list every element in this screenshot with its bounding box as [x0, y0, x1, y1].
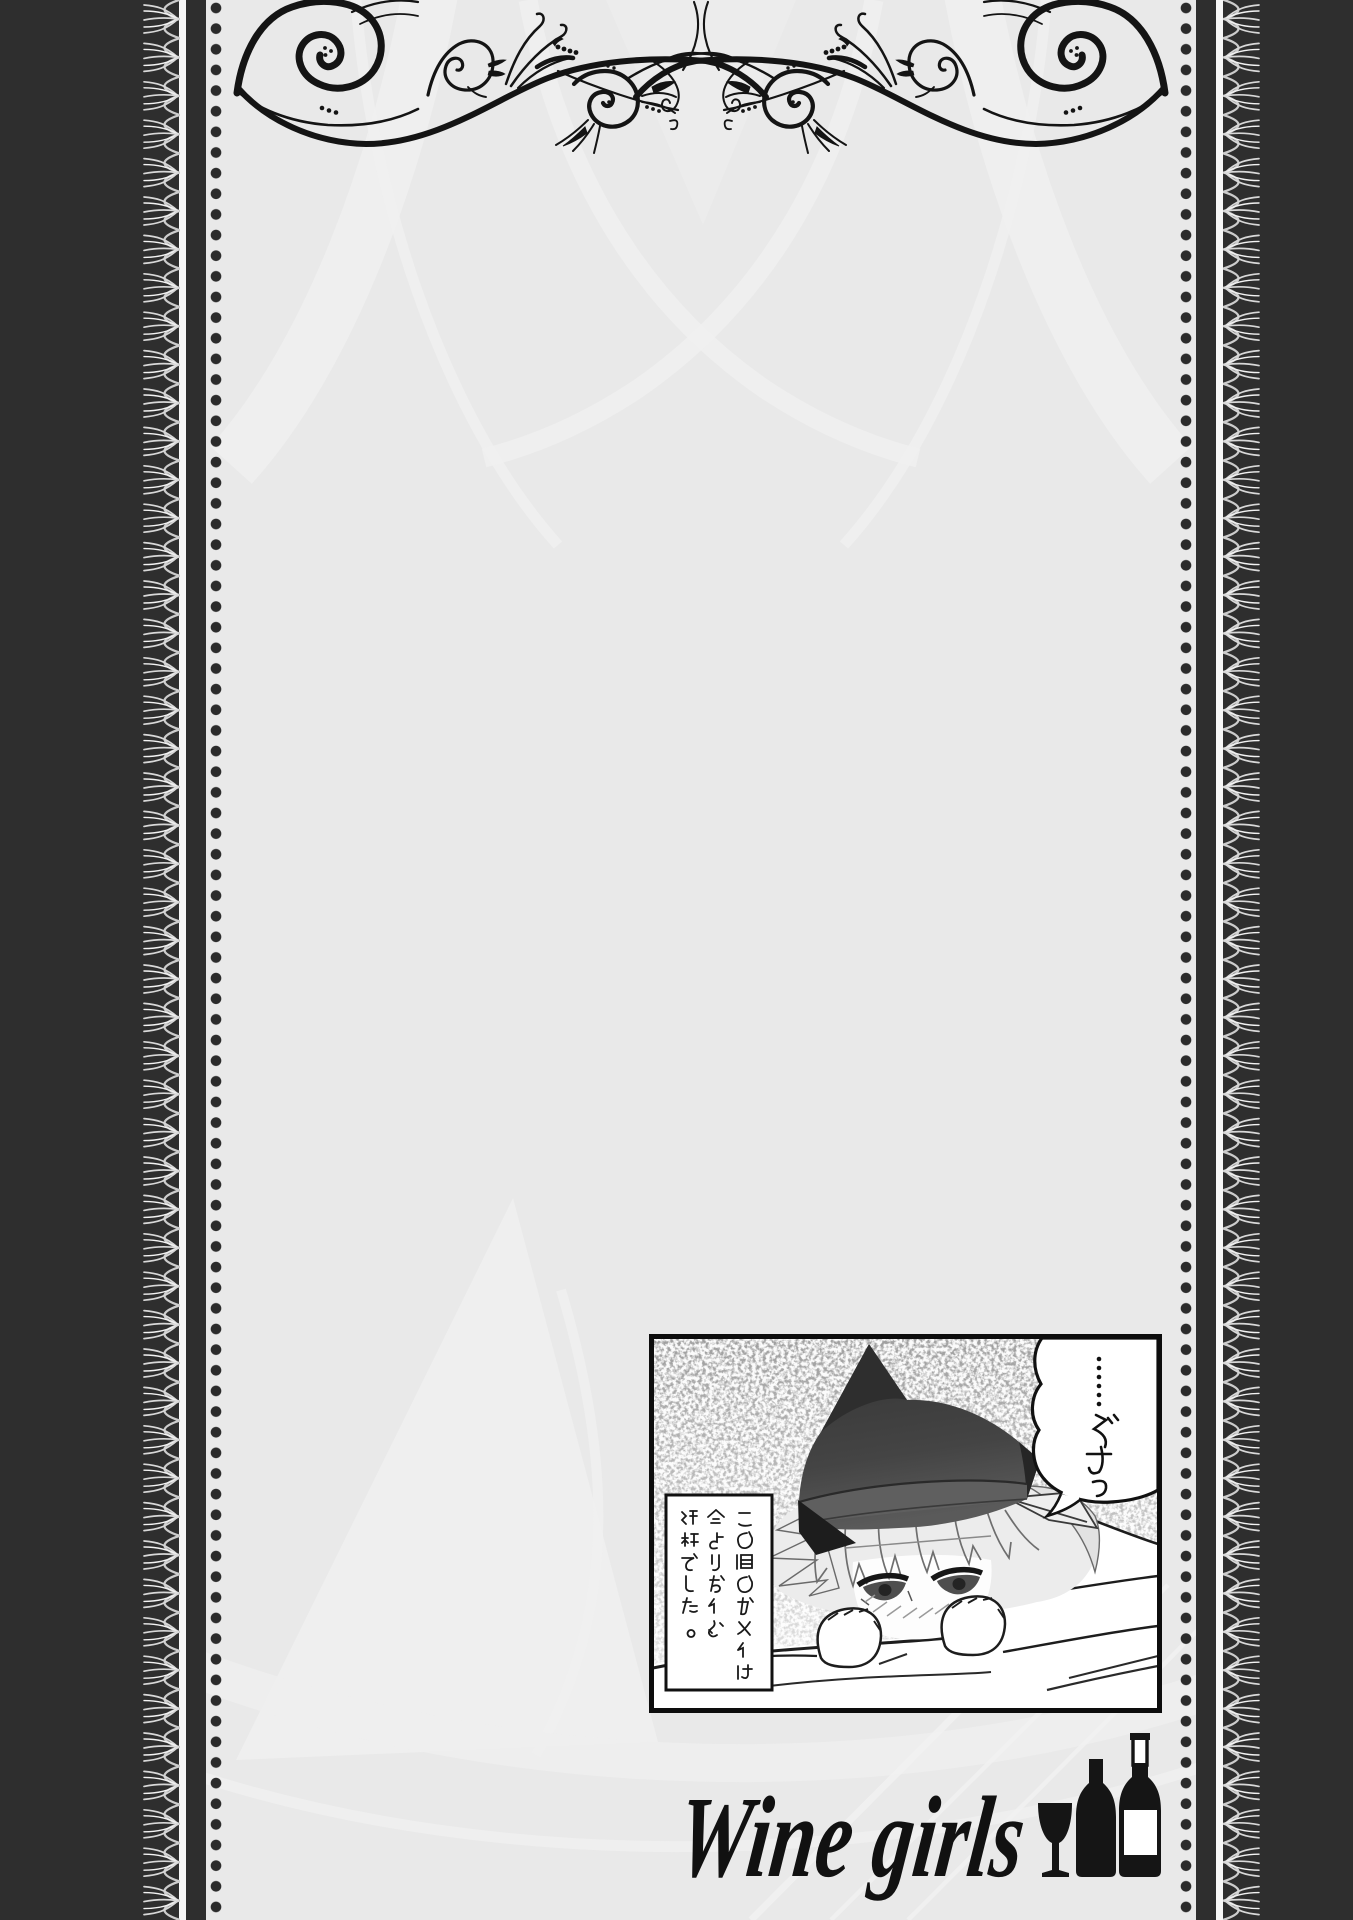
svg-text:Wine girls: Wine girls	[671, 1773, 1032, 1902]
